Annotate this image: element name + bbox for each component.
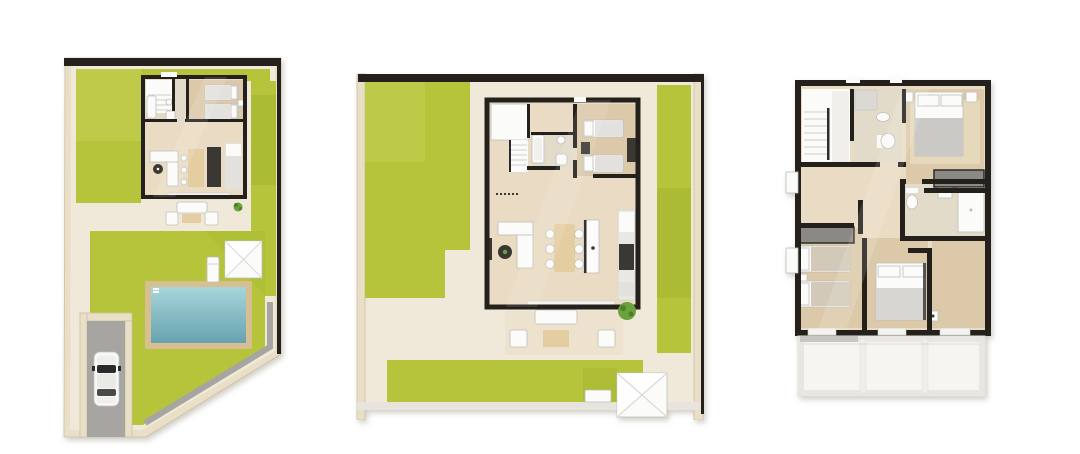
plan-first-floor-svg [782,78,992,408]
parked-car [92,352,121,406]
kitchen-island [584,220,599,273]
house-ground-floor [143,72,245,199]
plan-plot-svg [55,55,305,445]
sink [557,136,565,144]
window-sill [846,78,860,83]
plot-top-wall [64,58,281,66]
wardrobe [627,138,636,162]
pool-ladder-icon [153,288,159,290]
shrub-icon [234,203,243,212]
sink [877,113,890,122]
sliding-door [878,328,906,335]
potted-plant-icon [618,302,636,320]
kitchen-counter [618,210,635,300]
floor-plans-render [0,0,1080,454]
window-ledge [786,172,798,193]
nightstand [966,92,977,102]
toilet [907,195,918,209]
outdoor-table [543,330,569,347]
plot-right-fence [277,58,281,354]
sun-lounger [585,390,611,402]
plan-plot [55,55,305,445]
plan-first-floor [782,78,992,408]
parasol-icon [225,241,262,278]
terrace-lounge-set [505,310,623,355]
swimming-pool [145,281,252,349]
outdoor-sofa [535,310,577,324]
plot-right-fence [701,74,704,414]
shower [855,90,877,110]
sun-lounger [207,257,219,282]
wardrobe [934,170,984,187]
sliding-door [940,328,970,335]
balcony-pergola [798,336,985,396]
window-ledge [786,248,798,273]
stair-railing [827,108,830,160]
plan-ground-floor [355,68,715,420]
house [487,97,638,308]
parasol-icon [617,373,667,417]
wardrobe [800,227,854,243]
plan-ground-floor-svg [355,68,715,420]
staircase [802,89,850,165]
kitchen-counter [207,147,221,187]
window-sill [890,78,902,83]
window-sill [161,72,177,77]
plot-top-wall [358,74,704,82]
